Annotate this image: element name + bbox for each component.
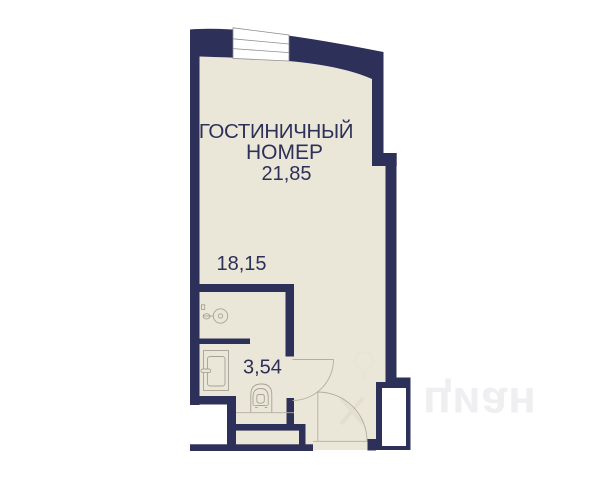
- svg-text:18,15: 18,15: [217, 253, 267, 275]
- svg-text:НОМЕР: НОМЕР: [246, 141, 323, 164]
- svg-text:циан: циан: [423, 378, 537, 430]
- svg-text:21,85: 21,85: [261, 163, 311, 185]
- svg-text:ГОСТИНИЧНЫЙ: ГОСТИНИЧНЫЙ: [199, 119, 353, 143]
- svg-text:3,54: 3,54: [243, 357, 282, 379]
